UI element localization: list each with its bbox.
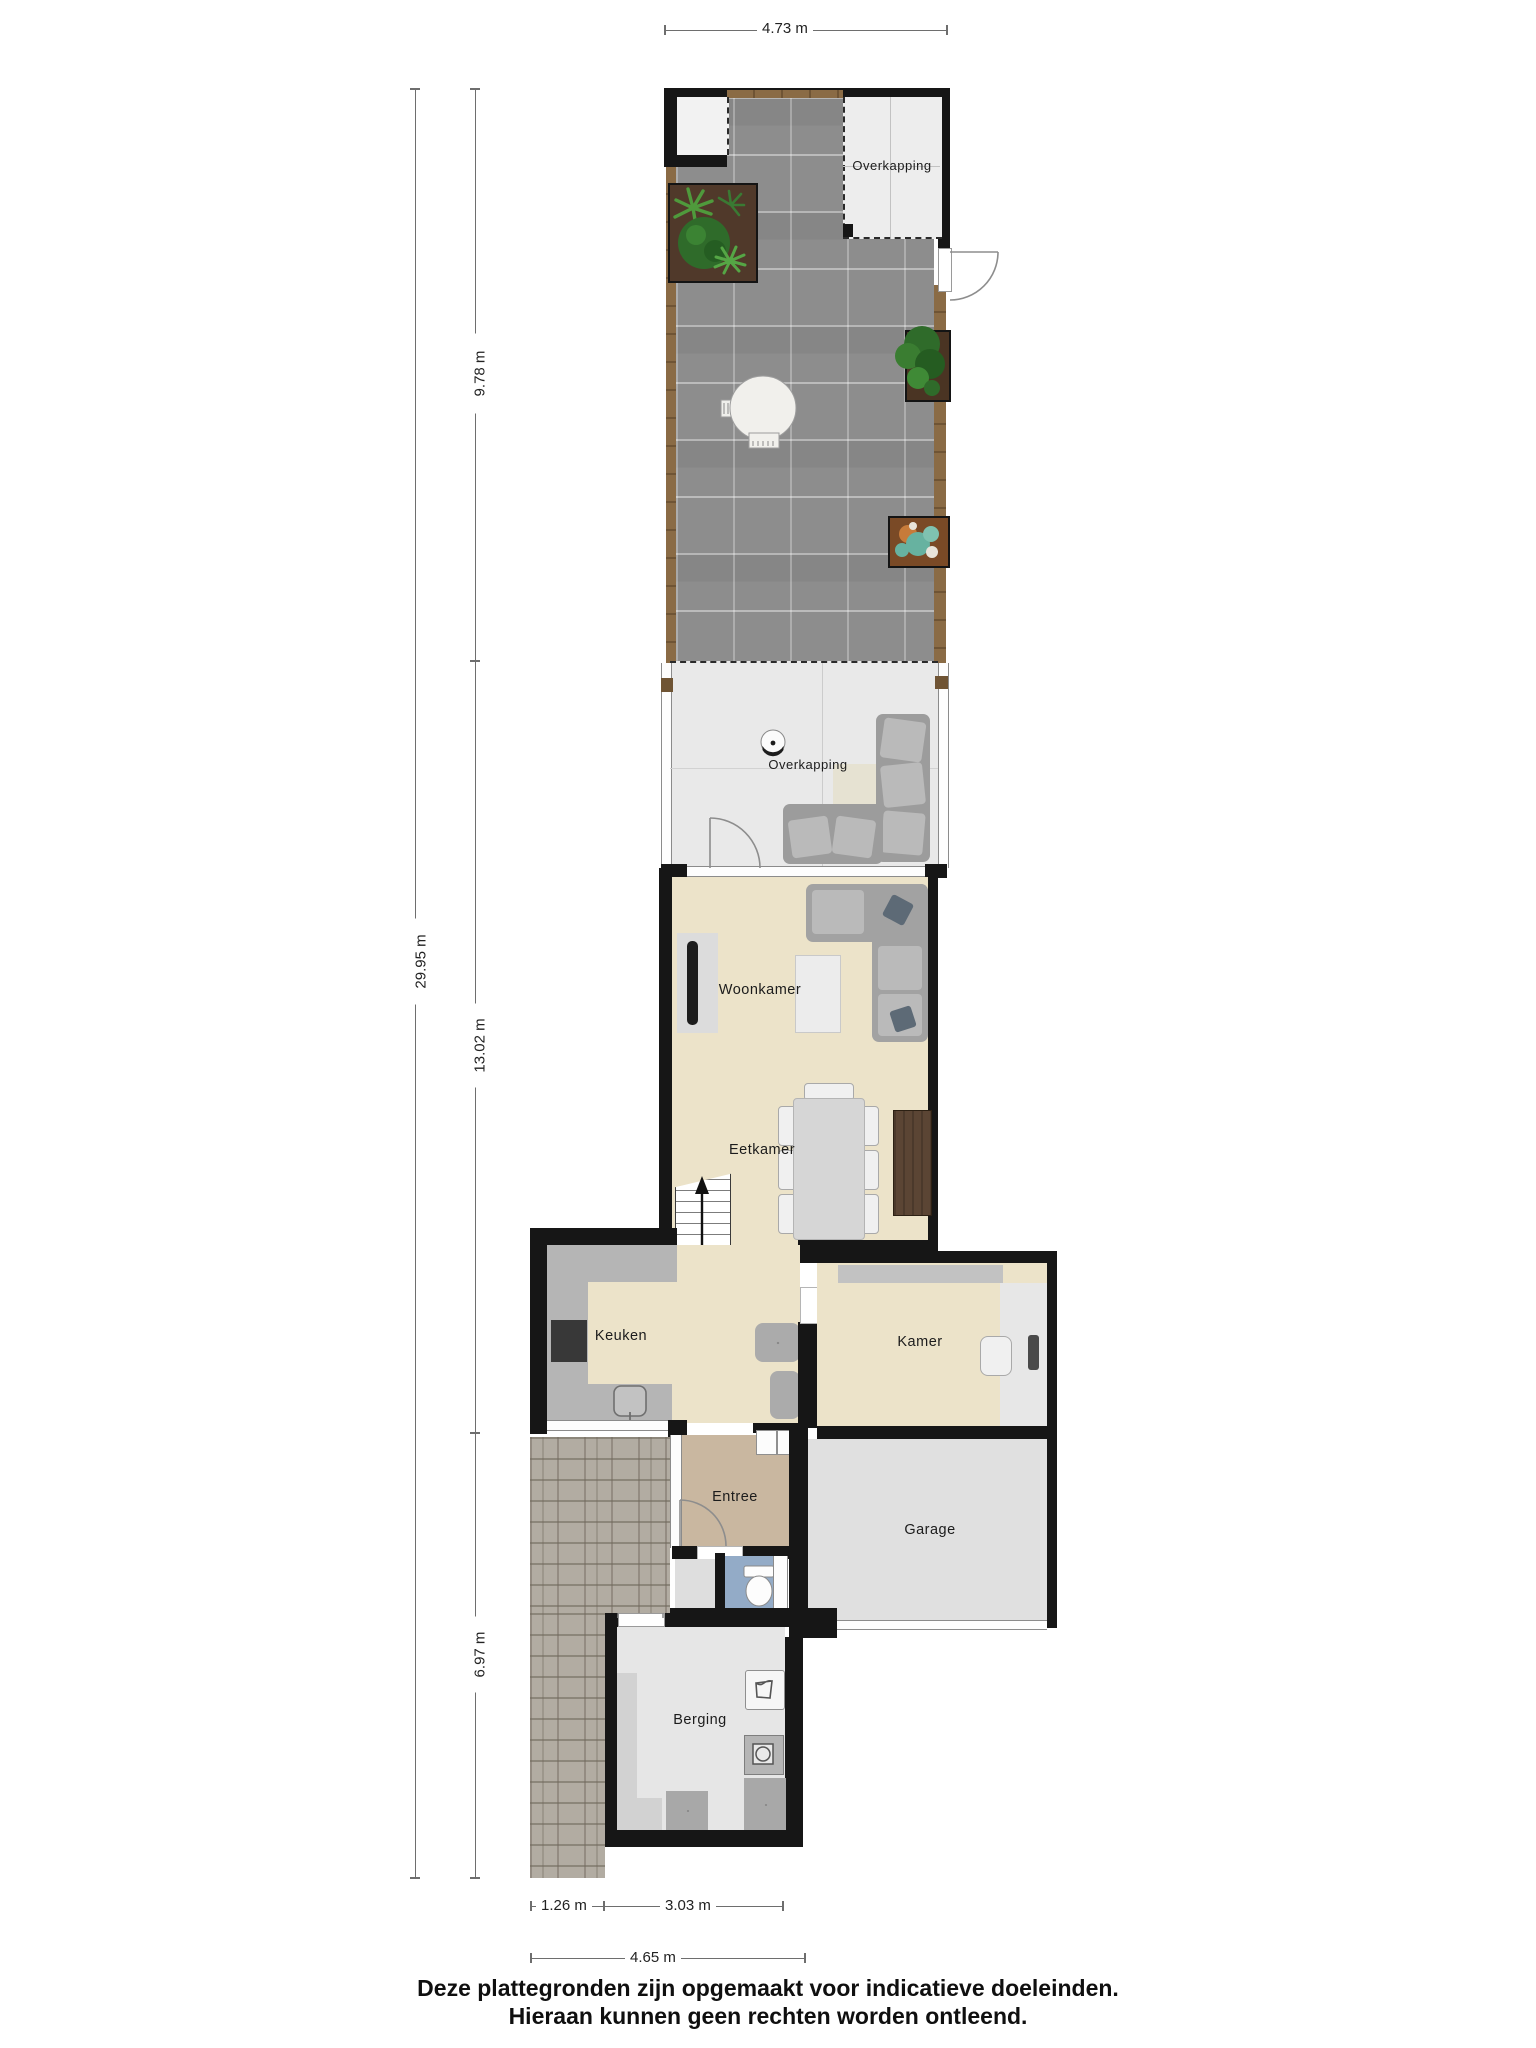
keuken-wall-left <box>530 1228 547 1434</box>
kitchen-unit-pad <box>770 1371 800 1419</box>
hall-floor <box>675 1559 715 1611</box>
laundry-basket-icon <box>752 1678 776 1702</box>
sofa-cushion <box>880 762 926 808</box>
planter-bush-icon <box>888 322 952 408</box>
room-label-eetkamer: Eetkamer <box>692 1142 832 1158</box>
dining-table <box>793 1098 865 1240</box>
dimension-tick <box>946 25 948 35</box>
room-label-berging: Berging <box>640 1712 760 1728</box>
dimension-label-path-width: 1.26 m <box>536 1896 592 1915</box>
kamer-wall-top <box>938 1251 1057 1263</box>
dimension-tick <box>410 1877 420 1879</box>
fire-bowl-icon <box>757 727 789 761</box>
dimension-label-berging-width: 3.03 m <box>660 1896 716 1915</box>
desk-chair <box>980 1336 1012 1376</box>
sideboard <box>893 1110 932 1216</box>
dimension-label-top-width: 4.73 m <box>757 19 813 38</box>
dimension-tick <box>530 1901 532 1911</box>
terrace-post <box>935 676 948 689</box>
floorplan-canvas: 4.73 m 29.95 m 9.78 m 13.02 m 6.97 m 1.2… <box>0 0 1536 2048</box>
dimension-label-rear-depth: 6.97 m <box>471 1617 490 1693</box>
berging-wall-right <box>785 1637 803 1847</box>
dimension-tick <box>804 1953 806 1963</box>
overkapping-top-post <box>843 224 853 237</box>
room-label-entree: Entree <box>675 1489 795 1505</box>
berging-counter <box>617 1673 637 1830</box>
ventilation-fan-icon <box>765 1804 767 1806</box>
dimension-tick <box>470 660 480 662</box>
paved-path <box>530 1613 605 1878</box>
berging-wall-bottom <box>605 1830 803 1847</box>
dimension-tick <box>782 1901 784 1911</box>
planter-succulents-icon <box>888 516 946 564</box>
alcove-wall-bottom <box>664 155 727 167</box>
dimension-tick <box>530 1953 532 1963</box>
sofa-cushion <box>878 946 922 990</box>
dimension-tick <box>470 1432 480 1434</box>
planter-plants-icon <box>668 183 754 279</box>
paved-path <box>530 1437 670 1613</box>
wall-living-kamer <box>798 1240 938 1263</box>
room-label-garage: Garage <box>870 1522 990 1538</box>
garage-corner-block <box>789 1608 837 1638</box>
dimension-label-total-depth: 29.95 m <box>412 919 431 1005</box>
keuken-window <box>547 1420 672 1431</box>
wall-kamer-garage <box>817 1426 1057 1439</box>
terrace-post <box>661 678 673 692</box>
building-wall-right <box>1047 1251 1057 1628</box>
wall-keuken-kamer-lower <box>798 1322 817 1428</box>
entree-fixture <box>756 1430 777 1455</box>
door-swing-terrace <box>700 812 766 872</box>
toilet-door <box>773 1556 788 1611</box>
dimension-tick <box>470 88 480 90</box>
ventilation-fan-icon <box>687 1810 689 1812</box>
door-opening-keuken-kamer <box>800 1287 818 1324</box>
garage-door <box>837 1620 1047 1630</box>
garage-wall-left <box>789 1423 808 1628</box>
sofa-cushion <box>879 717 926 762</box>
living-wall-left <box>659 868 672 1248</box>
dimension-tick <box>664 25 666 35</box>
dimension-tick <box>410 88 420 90</box>
desk-monitor-icon <box>1028 1335 1039 1370</box>
room-label-kamer: Kamer <box>860 1334 980 1350</box>
alcove-area <box>677 97 729 155</box>
garden-deck-strip-top <box>727 90 843 98</box>
washing-machine-icon <box>751 1742 775 1766</box>
room-label-keuken: Keuken <box>561 1328 681 1344</box>
wall-toilet-bottom <box>663 1608 802 1627</box>
sofa-cushion <box>788 815 833 858</box>
kamer-closet <box>838 1265 1003 1283</box>
dimension-tick <box>470 1877 480 1879</box>
room-label-woonkamer: Woonkamer <box>690 982 830 998</box>
room-label-overkapping-terras: Overkapping <box>733 757 883 772</box>
dimension-label-house-depth: 13.02 m <box>471 1004 490 1088</box>
ventilation-fan-icon <box>777 1342 779 1344</box>
keuken-wall-top <box>530 1228 677 1245</box>
room-label-overkapping-top: Overkapping <box>838 158 946 173</box>
dimension-label-total-width: 4.65 m <box>625 1948 681 1967</box>
door-swing-garden-gate <box>946 244 1026 324</box>
sofa-cushion <box>812 890 864 934</box>
sofa-cushion <box>880 810 926 856</box>
footer-disclaimer-line2: Hieraan kunnen geen rechten worden ontle… <box>0 2003 1536 2030</box>
berging-counter <box>637 1798 662 1830</box>
berging-wall-left <box>605 1613 617 1847</box>
statue-icon <box>713 373 803 455</box>
terrace-glass-wall-right <box>938 663 949 868</box>
dimension-label-garden-depth: 9.78 m <box>471 334 490 414</box>
sofa-cushion <box>832 815 877 858</box>
terrace-glass-wall-left <box>661 663 672 868</box>
toilet-wall-left <box>715 1553 725 1611</box>
footer-disclaimer-line1: Deze plattegronden zijn opgemaakt voor i… <box>0 1975 1536 2002</box>
